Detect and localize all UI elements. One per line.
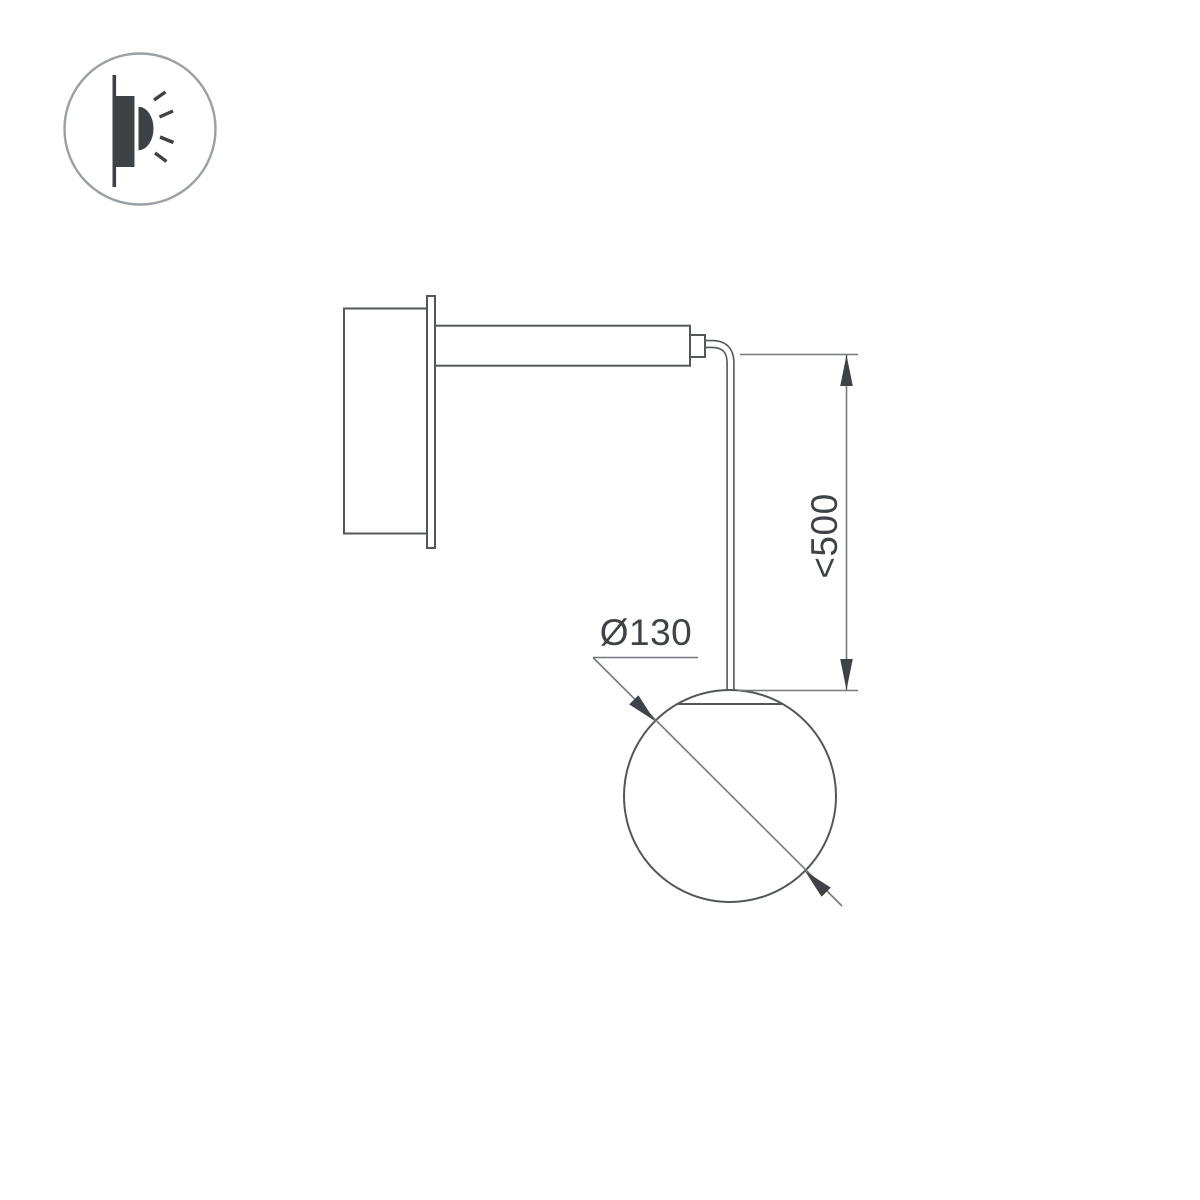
arrow-down-right-icon <box>629 695 655 721</box>
icon-fixture-body <box>116 96 135 167</box>
height-dimension: <500 <box>737 355 858 691</box>
arrow-up-icon <box>840 355 853 386</box>
wall-light-glow-icon <box>65 54 216 205</box>
lamp-drawing <box>344 296 836 902</box>
diameter-dim-label: Ø130 <box>600 612 693 653</box>
wall-mount-box <box>344 309 427 534</box>
cable-outline <box>702 344 731 690</box>
horizontal-arm <box>435 326 690 366</box>
arm-end-cap <box>690 335 705 357</box>
technical-drawing-page: <500 Ø130 <box>0 0 1200 1200</box>
globe-shade <box>624 690 836 902</box>
arrow-down-icon <box>840 659 853 690</box>
arrow-up-left-icon <box>805 871 831 897</box>
wall-plate <box>427 296 435 548</box>
height-dim-label: <500 <box>804 493 845 578</box>
wall-lamp-dimension-diagram: <500 Ø130 <box>0 0 1200 1200</box>
icon-wall-line <box>113 75 117 187</box>
cable-core <box>702 344 731 690</box>
